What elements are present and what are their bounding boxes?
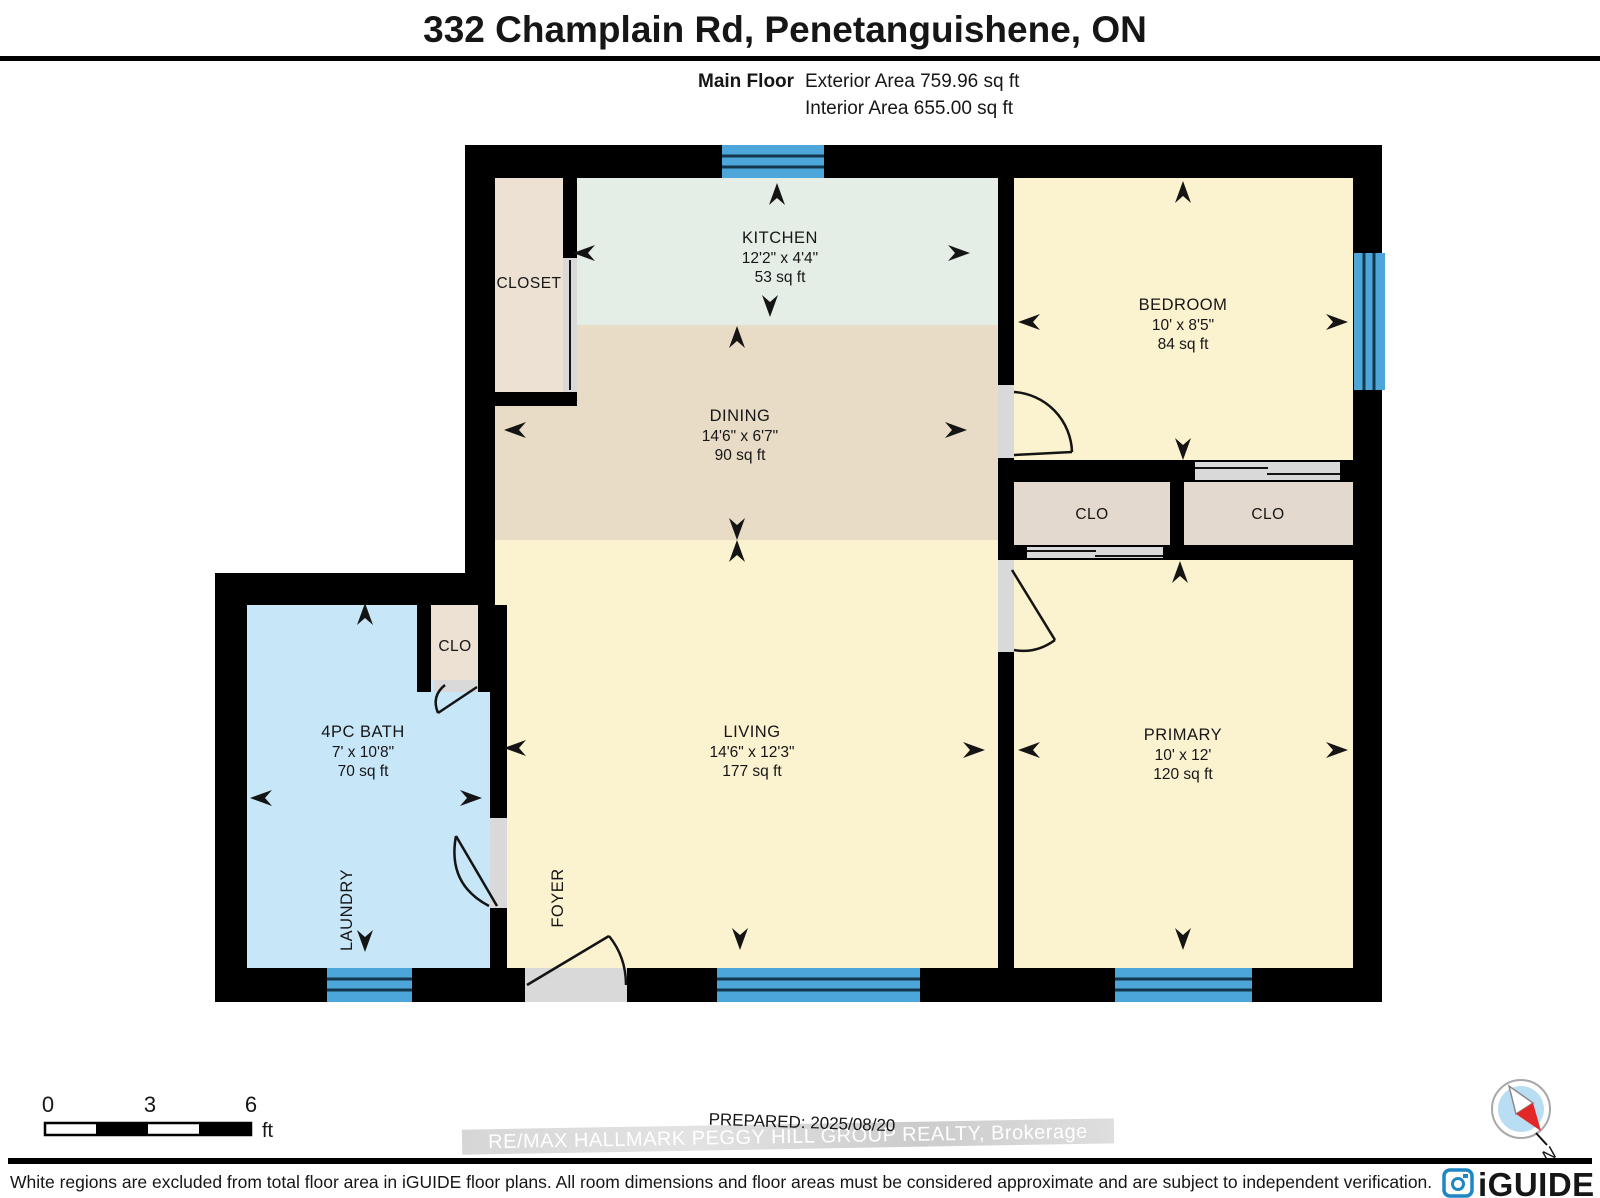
primary-area: 120 sq ft [1153, 766, 1213, 783]
front-door-opening [525, 968, 627, 1002]
scale-mid: 3 [144, 1092, 156, 1117]
floorplan: KITCHEN 12'2" x 4'4" 53 sq ft DINING 14'… [215, 145, 1385, 1002]
living-label: LIVING [723, 723, 780, 741]
bedroom-label: BEDROOM [1139, 296, 1228, 314]
bath-label: 4PC BATH [321, 723, 404, 741]
primary-window [1115, 968, 1252, 1002]
dining-dims: 14'6" x 6'7" [702, 428, 778, 445]
floorplan-page: 332 Champlain Rd, Penetanguishene, ON Ma… [0, 0, 1600, 1198]
kitchen-window [722, 145, 824, 178]
scale-bar-seg2 [199, 1123, 251, 1135]
iguide-logo-notch [1463, 1174, 1468, 1178]
wall-bathclo-right [478, 605, 507, 692]
interior-area-label: Interior Area 655.00 sq ft [805, 98, 1014, 119]
primary-floor [1014, 560, 1353, 968]
footer: White regions are excluded from total fl… [8, 1158, 1592, 1192]
bedroom-dims: 10' x 8'5" [1152, 317, 1214, 334]
clo-bath-label: CLO [438, 638, 471, 655]
primary-label: PRIMARY [1144, 726, 1222, 744]
bath-dims: 7' x 10'8" [332, 744, 394, 761]
iguide-logo: iGUIDE [1444, 1166, 1595, 1198]
iguide-logo-lens-icon [1453, 1179, 1464, 1190]
bedroom-door-opening [998, 385, 1014, 458]
header: 332 Champlain Rd, Penetanguishene, ON Ma… [0, 9, 1600, 119]
bath-door-opening [490, 818, 507, 908]
laundry-label: LAUNDRY [338, 869, 356, 951]
page-title: 332 Champlain Rd, Penetanguishene, ON [423, 9, 1147, 50]
floor-label: Main Floor [698, 71, 795, 92]
scale-unit: ft [262, 1120, 274, 1142]
closet-label: CLOSET [496, 275, 561, 292]
dining-area: 90 sq ft [715, 447, 767, 464]
bedroom-window [1354, 253, 1385, 390]
living-dims: 14'6" x 12'3" [709, 744, 794, 761]
primary-door-opening [998, 560, 1014, 652]
scale-start: 0 [42, 1092, 54, 1117]
wall-bathclo-left [417, 605, 431, 692]
clo-right-sliding-door [1195, 462, 1340, 480]
primary-dims: 10' x 12' [1155, 747, 1212, 764]
clo-left-label: CLO [1075, 506, 1108, 523]
iguide-logo-text: iGUIDE [1478, 1166, 1595, 1198]
bath-area: 70 sq ft [338, 763, 390, 780]
header-rule [0, 56, 1600, 61]
compass: N [1492, 1080, 1561, 1167]
wall-closet-right [563, 178, 577, 258]
disclaimer-text: White regions are excluded from total fl… [10, 1172, 1432, 1192]
compass-north-tick [1536, 1133, 1547, 1145]
kitchen-label: KITCHEN [742, 229, 818, 247]
bedroom-area: 84 sq ft [1158, 336, 1210, 353]
wall-clo-divider [1170, 482, 1184, 545]
living-window [717, 968, 920, 1002]
dining-label: DINING [710, 407, 771, 425]
laundry-window [327, 968, 412, 1002]
scale-end: 6 [245, 1092, 257, 1117]
footer-rule [8, 1158, 1592, 1164]
kitchen-area: 53 sq ft [755, 269, 807, 286]
iguide-logo-icon [1444, 1170, 1472, 1196]
living-area: 177 sq ft [722, 763, 782, 780]
scale-bar-seg1 [96, 1123, 148, 1135]
foyer-label: FOYER [549, 868, 567, 927]
wall-closet-bottom [488, 392, 577, 406]
exterior-area-label: Exterior Area 759.96 sq ft [805, 71, 1020, 92]
kitchen-dims: 12'2" x 4'4" [742, 250, 818, 267]
clo-right-label: CLO [1251, 506, 1284, 523]
scale-bar: 0 3 6 ft [42, 1092, 274, 1142]
